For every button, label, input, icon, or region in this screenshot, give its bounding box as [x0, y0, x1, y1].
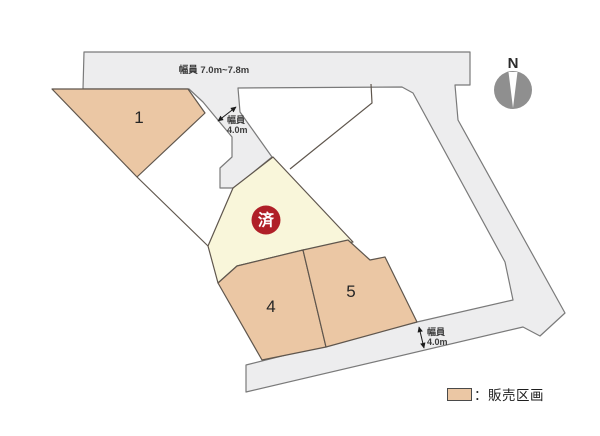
road-width-4m-upper: 幅員4.0m: [227, 114, 248, 135]
legend-sale-swatch: [447, 388, 472, 401]
compass-label: N: [508, 55, 519, 72]
sold-badge-text: 済: [258, 211, 275, 230]
legend: ：販売区画: [447, 384, 544, 404]
white-plot-divider: [290, 84, 372, 169]
plot-1-label: 1: [134, 108, 143, 127]
parcel-boundary-left: [137, 177, 208, 246]
lot-map-page: 145幅員 7.0m~7.8m幅員4.0m幅員4.0m済N ：販売区画: [0, 0, 600, 436]
legend-label: ：販売区画: [474, 384, 544, 404]
plot-1: [52, 89, 205, 177]
road-width-top: 幅員 7.0m~7.8m: [179, 64, 250, 76]
road-width-4m-lower: 幅員4.0m: [427, 326, 448, 347]
plot-5-label: 5: [346, 282, 355, 301]
plot-4-label: 4: [266, 297, 275, 316]
site-map-svg: 145幅員 7.0m~7.8m幅員4.0m幅員4.0m済N: [0, 0, 600, 436]
